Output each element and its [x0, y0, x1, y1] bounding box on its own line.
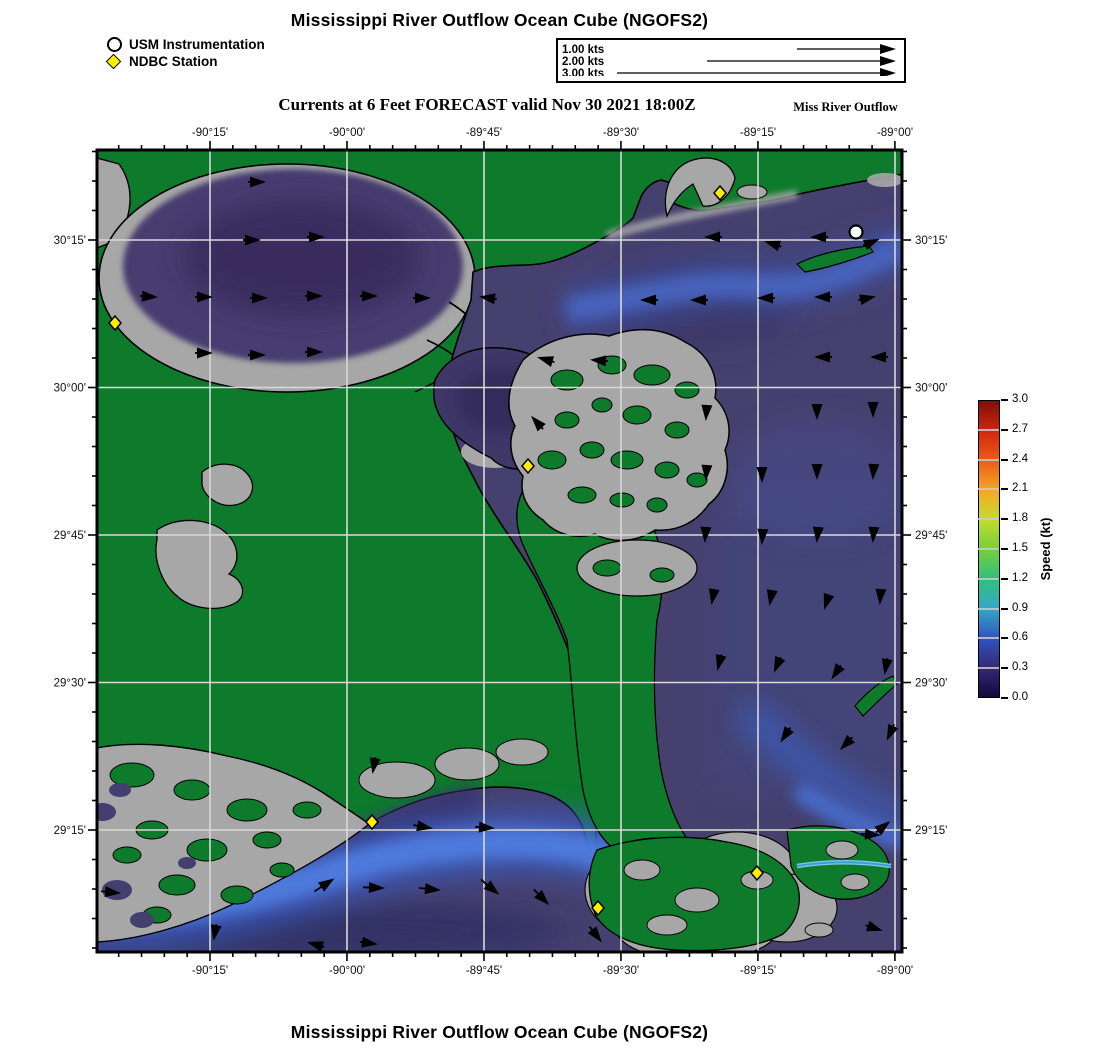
svg-text:30°15': 30°15' [54, 235, 86, 247]
svg-text:-89°00': -89°00' [877, 965, 913, 977]
svg-text:30°00': 30°00' [915, 383, 947, 395]
marker-legend: USM Instrumentation NDBC Station [107, 36, 265, 70]
footer-title: Mississippi River Outflow Ocean Cube (NG… [97, 1022, 902, 1043]
svg-text:-89°45': -89°45' [466, 127, 502, 139]
legend-label: USM Instrumentation [129, 37, 265, 52]
svg-text:29°15': 29°15' [54, 825, 86, 837]
colorbar-tick-label: 0.0 [1012, 691, 1052, 703]
legend-label: NDBC Station [129, 54, 218, 69]
svg-text:30°00': 30°00' [54, 383, 86, 395]
svg-text:29°45': 29°45' [915, 530, 947, 542]
svg-text:-89°15': -89°15' [740, 965, 776, 977]
svg-text:1.00 kts: 1.00 kts [562, 44, 604, 56]
colorbar-tick-label: 0.6 [1012, 631, 1052, 643]
svg-text:-89°00': -89°00' [877, 127, 913, 139]
map-canvas: -90°15'-90°15'-90°00'-90°00'-89°45'-89°4… [97, 150, 902, 952]
svg-text:3.00 kts: 3.00 kts [562, 68, 604, 76]
legend-item-usm: USM Instrumentation [107, 36, 265, 52]
vector-scale-arrows: 1.00 kts2.00 kts3.00 kts [558, 40, 899, 76]
svg-text:30°15': 30°15' [915, 235, 947, 247]
map-subtitle-tag: Miss River Outflow [783, 100, 908, 115]
page-title: Mississippi River Outflow Ocean Cube (NG… [97, 10, 902, 31]
colorbar-tick-label: 0.3 [1012, 661, 1052, 673]
svg-text:-89°30': -89°30' [603, 965, 639, 977]
svg-text:29°45': 29°45' [54, 530, 86, 542]
svg-text:-90°00': -90°00' [329, 127, 365, 139]
svg-text:29°30': 29°30' [915, 678, 947, 690]
lake-pontchartrain [99, 164, 475, 392]
vector-scale-legend: 1.00 kts2.00 kts3.00 kts [556, 38, 906, 83]
svg-text:-89°15': -89°15' [740, 127, 776, 139]
map-art [87, 150, 907, 960]
usm-circle-icon [107, 37, 129, 52]
forecast-map: -90°15'-90°15'-90°00'-90°00'-89°45'-89°4… [97, 150, 902, 952]
svg-text:-89°30': -89°30' [603, 127, 639, 139]
svg-text:-90°00': -90°00' [329, 965, 365, 977]
colorbar-tick-label: 3.0 [1012, 393, 1052, 405]
svg-text:29°15': 29°15' [915, 825, 947, 837]
map-subtitle: Currents at 6 Feet FORECAST valid Nov 30… [97, 95, 877, 115]
colorbar-title: Speed (kt) [1038, 479, 1058, 619]
ndbc-diamond-icon [107, 56, 129, 67]
colorbar-tick-label: 2.4 [1012, 453, 1052, 465]
svg-text:2.00 kts: 2.00 kts [562, 56, 604, 68]
legend-item-ndbc: NDBC Station [107, 53, 265, 69]
svg-text:-89°45': -89°45' [466, 965, 502, 977]
svg-text:29°30': 29°30' [54, 678, 86, 690]
figure: Mississippi River Outflow Ocean Cube (NG… [0, 0, 1100, 1050]
svg-text:-90°15': -90°15' [192, 127, 228, 139]
colorbar-tick-label: 2.7 [1012, 423, 1052, 435]
svg-text:-90°15': -90°15' [192, 965, 228, 977]
